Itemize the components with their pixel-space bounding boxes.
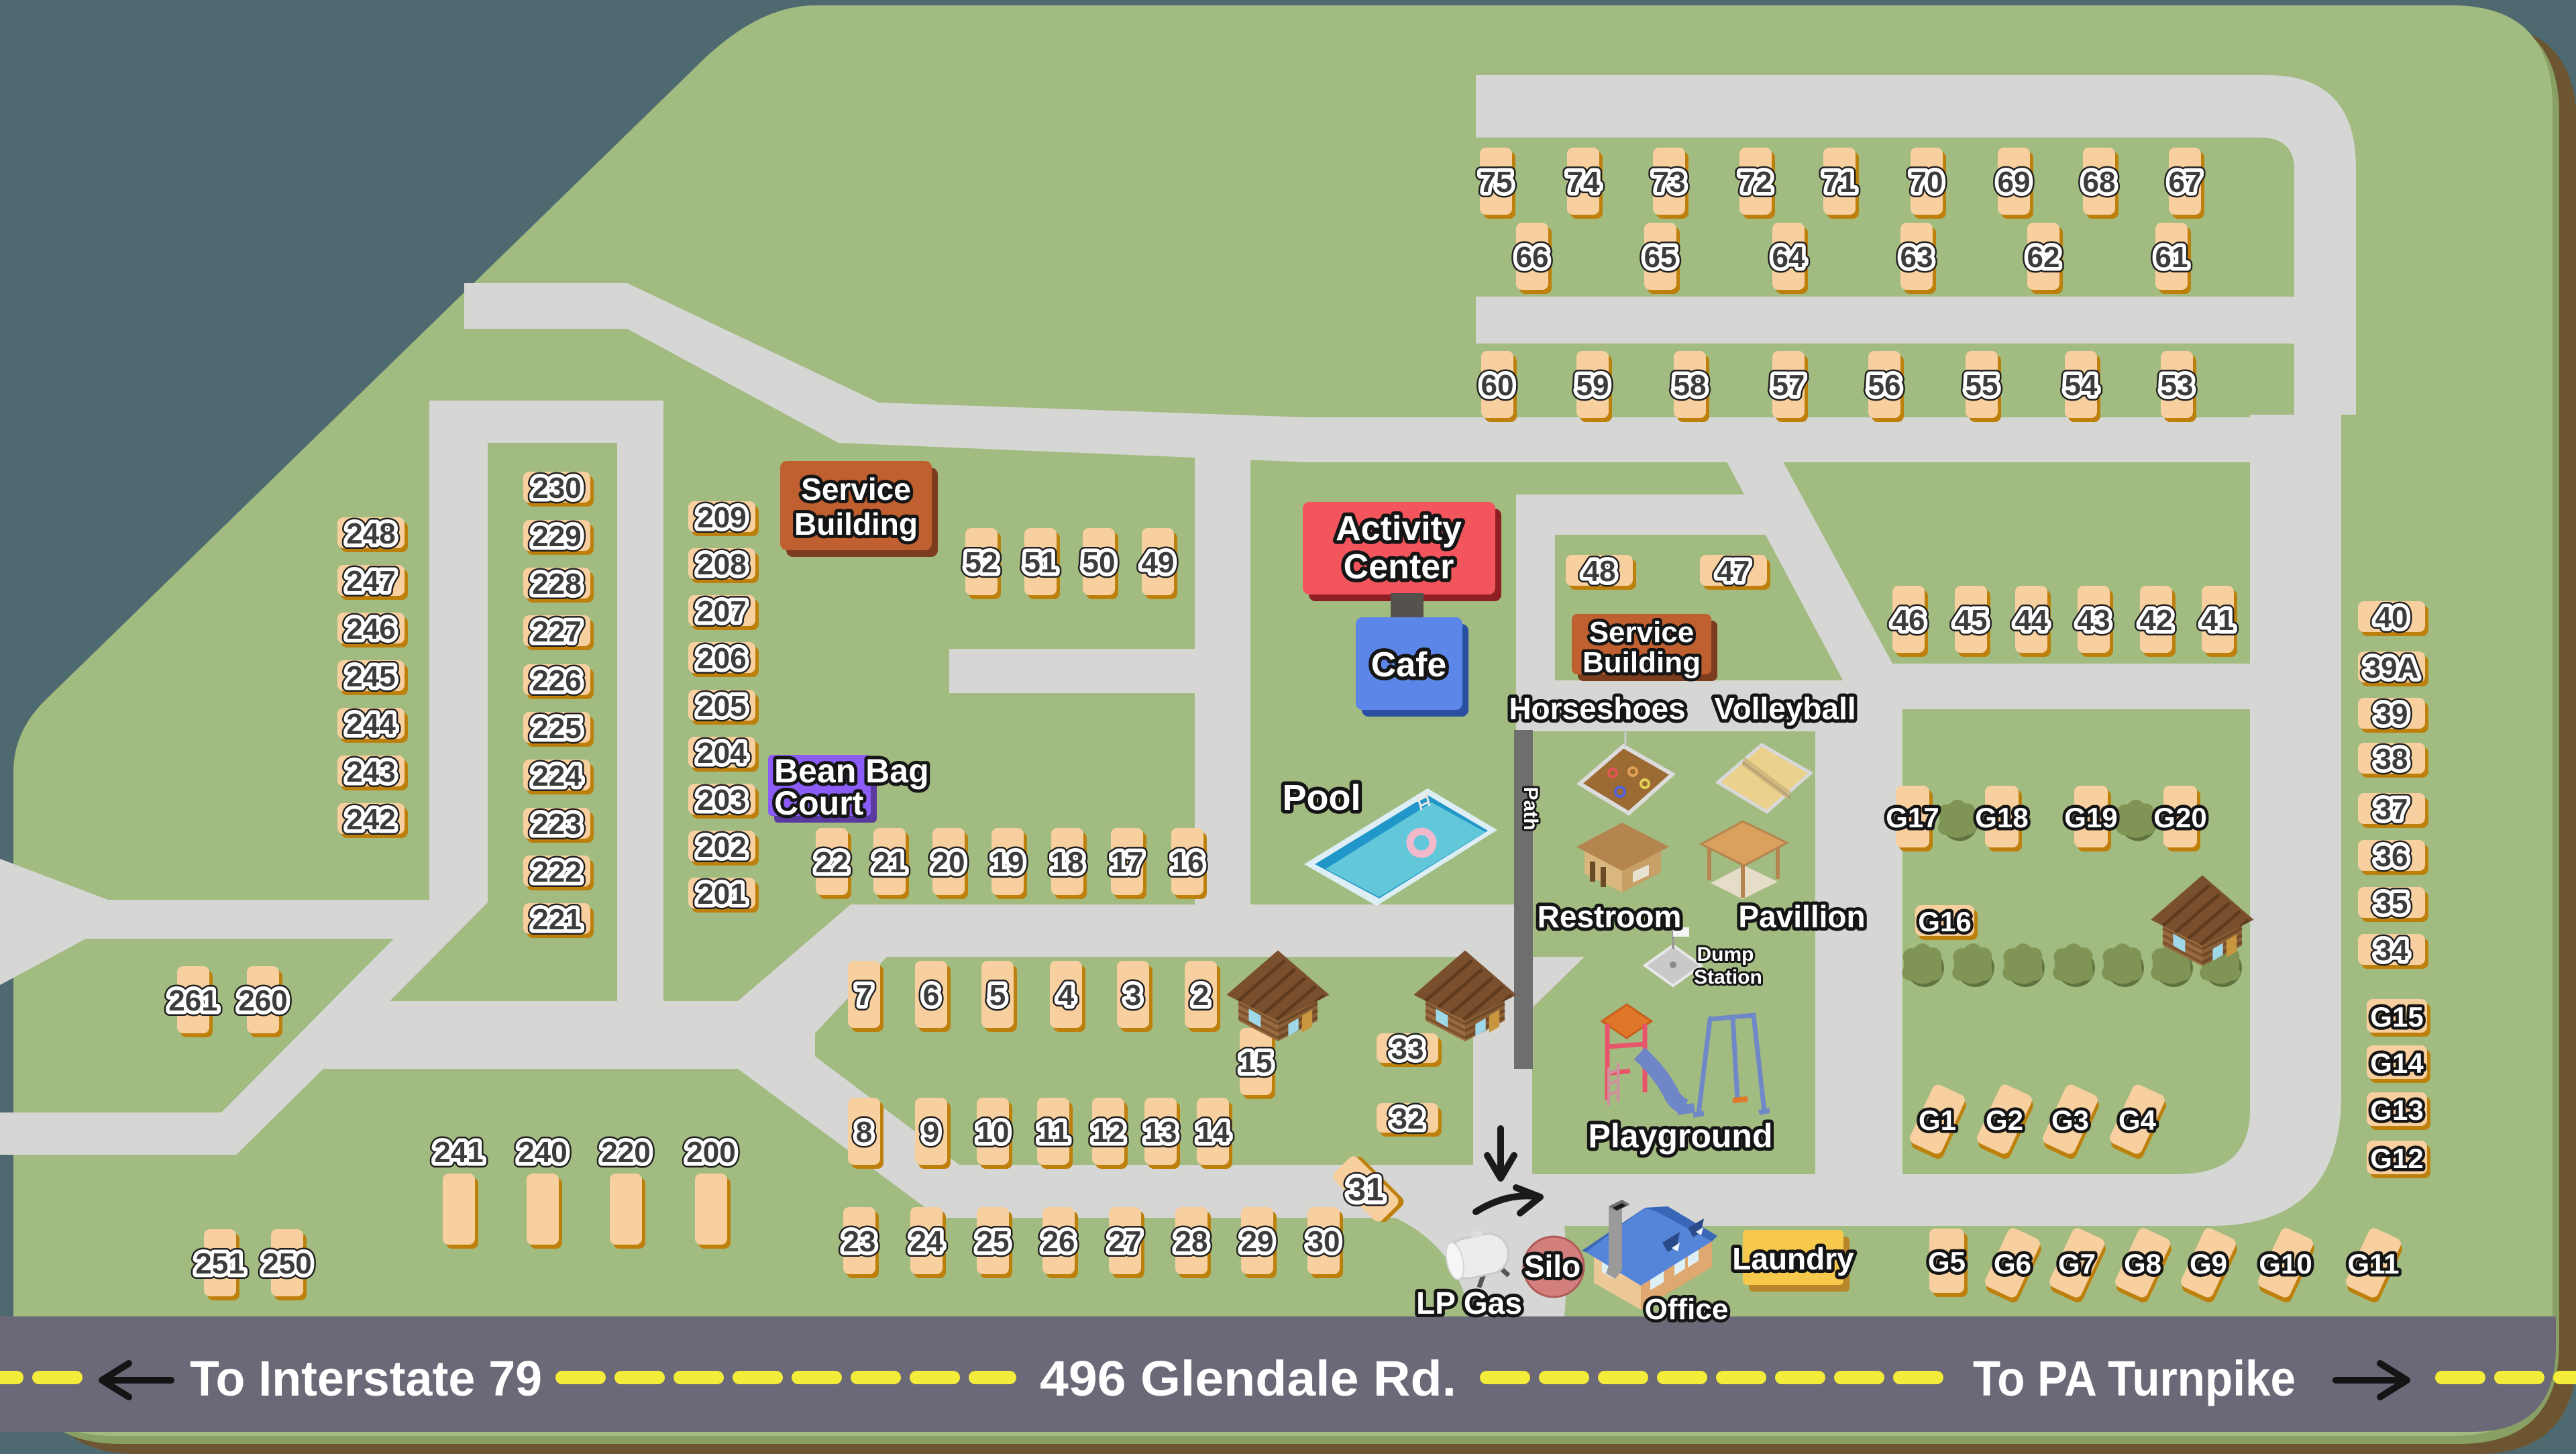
- svg-text:32: 32: [1391, 1102, 1424, 1135]
- svg-text:241: 241: [434, 1136, 483, 1169]
- svg-text:Building: Building: [1582, 646, 1701, 679]
- svg-text:20: 20: [932, 846, 965, 879]
- svg-text:51: 51: [1024, 546, 1057, 579]
- svg-text:223: 223: [532, 808, 581, 841]
- svg-text:G11: G11: [2347, 1248, 2399, 1280]
- svg-text:48: 48: [1583, 555, 1616, 588]
- svg-text:G12: G12: [2370, 1143, 2423, 1174]
- svg-text:229: 229: [532, 520, 581, 553]
- svg-text:29: 29: [1241, 1225, 1274, 1258]
- svg-text:10: 10: [977, 1116, 1010, 1149]
- svg-text:58: 58: [1674, 369, 1707, 402]
- svg-text:44: 44: [2015, 604, 2048, 637]
- svg-text:15: 15: [1240, 1046, 1273, 1079]
- svg-text:19: 19: [991, 846, 1024, 879]
- svg-text:Dump: Dump: [1697, 943, 1754, 966]
- svg-text:G4: G4: [2118, 1104, 2157, 1136]
- svg-text:67: 67: [2169, 166, 2202, 199]
- svg-text:Path: Path: [1519, 786, 1542, 830]
- svg-text:250: 250: [262, 1247, 311, 1280]
- svg-text:Volleyball: Volleyball: [1714, 691, 1856, 726]
- svg-text:61: 61: [2155, 241, 2188, 274]
- svg-text:24: 24: [910, 1225, 943, 1258]
- svg-text:260: 260: [238, 984, 287, 1017]
- svg-text:46: 46: [1892, 604, 1925, 637]
- svg-text:Pavillion: Pavillion: [1738, 899, 1865, 934]
- svg-text:4: 4: [1058, 979, 1075, 1012]
- svg-text:18: 18: [1051, 846, 1084, 879]
- svg-text:206: 206: [697, 642, 746, 675]
- svg-text:200: 200: [686, 1136, 735, 1169]
- svg-text:54: 54: [2065, 369, 2098, 402]
- svg-text:11: 11: [1038, 1116, 1069, 1149]
- svg-text:248: 248: [346, 517, 395, 550]
- svg-text:42: 42: [2140, 604, 2173, 637]
- svg-text:228: 228: [532, 568, 581, 601]
- svg-text:201: 201: [697, 878, 746, 911]
- svg-text:205: 205: [697, 690, 746, 723]
- svg-text:47: 47: [1717, 555, 1750, 588]
- svg-text:75: 75: [1480, 166, 1513, 199]
- svg-text:222: 222: [532, 855, 581, 888]
- svg-text:251: 251: [195, 1247, 244, 1280]
- svg-text:69: 69: [1998, 166, 2031, 199]
- svg-text:Center: Center: [1344, 548, 1454, 586]
- svg-text:17: 17: [1111, 846, 1144, 879]
- svg-text:71: 71: [1823, 166, 1856, 199]
- svg-text:40: 40: [2375, 601, 2408, 634]
- svg-text:224: 224: [532, 760, 582, 792]
- svg-text:240: 240: [518, 1136, 567, 1169]
- svg-text:244: 244: [346, 708, 396, 741]
- svg-text:G17: G17: [1886, 802, 1939, 833]
- svg-text:221: 221: [532, 903, 581, 936]
- svg-text:G8: G8: [2124, 1248, 2161, 1280]
- svg-text:56: 56: [1868, 369, 1901, 402]
- svg-text:Office: Office: [1645, 1293, 1729, 1326]
- svg-text:64: 64: [1772, 241, 1805, 274]
- svg-text:G10: G10: [2259, 1248, 2312, 1280]
- svg-text:Station: Station: [1694, 966, 1762, 988]
- svg-text:G9: G9: [2190, 1248, 2227, 1280]
- svg-text:Horseshoes: Horseshoes: [1509, 691, 1685, 726]
- svg-text:G14: G14: [2370, 1047, 2424, 1079]
- svg-text:G5: G5: [1928, 1246, 1966, 1278]
- svg-text:247: 247: [346, 565, 395, 598]
- svg-text:G1: G1: [1919, 1104, 1956, 1136]
- svg-text:43: 43: [2078, 604, 2110, 637]
- svg-text:2: 2: [1193, 979, 1209, 1012]
- svg-text:26: 26: [1042, 1225, 1075, 1258]
- svg-text:16: 16: [1171, 846, 1204, 879]
- svg-text:Service: Service: [801, 472, 911, 507]
- svg-text:57: 57: [1772, 369, 1805, 402]
- svg-text:225: 225: [532, 712, 581, 745]
- svg-text:Pool: Pool: [1283, 778, 1361, 818]
- svg-text:Laundry: Laundry: [1732, 1241, 1854, 1276]
- svg-text:70: 70: [1911, 166, 1943, 199]
- svg-text:22: 22: [816, 846, 849, 879]
- svg-text:72: 72: [1739, 166, 1772, 199]
- svg-text:245: 245: [346, 660, 395, 693]
- svg-text:207: 207: [697, 595, 746, 628]
- svg-text:13: 13: [1144, 1116, 1177, 1149]
- svg-text:6: 6: [923, 979, 939, 1012]
- svg-text:41: 41: [2202, 604, 2235, 637]
- svg-text:242: 242: [346, 803, 395, 836]
- svg-text:60: 60: [1481, 369, 1514, 402]
- svg-text:203: 203: [697, 784, 746, 817]
- svg-text:74: 74: [1567, 166, 1600, 199]
- svg-text:Playground: Playground: [1588, 1117, 1772, 1155]
- svg-text:To PA Turnpike: To PA Turnpike: [1973, 1351, 2296, 1406]
- svg-text:12: 12: [1092, 1116, 1125, 1149]
- svg-text:Court: Court: [774, 784, 864, 822]
- svg-text:38: 38: [2375, 743, 2408, 776]
- svg-text:G16: G16: [1918, 906, 1971, 937]
- svg-text:62: 62: [2027, 241, 2060, 274]
- svg-text:73: 73: [1653, 166, 1686, 199]
- svg-text:220: 220: [601, 1136, 650, 1169]
- svg-text:226: 226: [532, 664, 581, 697]
- svg-text:Activity: Activity: [1336, 509, 1462, 548]
- svg-text:204: 204: [697, 737, 747, 770]
- svg-text:35: 35: [2375, 887, 2408, 920]
- svg-text:Restroom: Restroom: [1538, 899, 1682, 934]
- svg-text:45: 45: [1955, 604, 1988, 637]
- svg-text:496 Glendale Rd.: 496 Glendale Rd.: [1040, 1351, 1456, 1406]
- svg-text:34: 34: [2375, 934, 2408, 967]
- svg-text:227: 227: [532, 615, 581, 648]
- svg-text:G18: G18: [1975, 802, 2028, 833]
- svg-text:8: 8: [856, 1116, 872, 1149]
- svg-text:G20: G20: [2153, 802, 2206, 833]
- svg-text:Silo: Silo: [1524, 1249, 1580, 1284]
- svg-text:G2: G2: [1986, 1104, 2023, 1136]
- svg-text:31: 31: [1348, 1172, 1383, 1208]
- svg-text:33: 33: [1391, 1033, 1424, 1066]
- svg-text:246: 246: [346, 613, 395, 645]
- svg-text:66: 66: [1516, 241, 1549, 274]
- svg-text:14: 14: [1197, 1116, 1230, 1149]
- svg-text:36: 36: [2375, 840, 2408, 873]
- svg-text:G13: G13: [2370, 1094, 2423, 1126]
- svg-text:28: 28: [1175, 1225, 1208, 1258]
- svg-text:To Interstate 79: To Interstate 79: [190, 1351, 542, 1406]
- svg-text:208: 208: [697, 548, 746, 581]
- svg-text:53: 53: [2161, 369, 2194, 402]
- svg-text:39A: 39A: [2365, 652, 2419, 684]
- svg-text:261: 261: [168, 984, 217, 1017]
- svg-text:G19: G19: [2064, 802, 2117, 833]
- svg-text:23: 23: [843, 1225, 876, 1258]
- svg-text:39: 39: [2375, 698, 2408, 731]
- svg-text:243: 243: [346, 756, 395, 788]
- svg-text:LP Gas: LP Gas: [1416, 1286, 1522, 1320]
- svg-text:3: 3: [1125, 979, 1141, 1012]
- svg-text:50: 50: [1083, 546, 1116, 579]
- svg-text:63: 63: [1900, 241, 1933, 274]
- svg-text:49: 49: [1142, 546, 1175, 579]
- svg-text:21: 21: [873, 846, 906, 879]
- svg-text:G3: G3: [2051, 1104, 2089, 1136]
- svg-text:30: 30: [1307, 1225, 1340, 1258]
- svg-text:59: 59: [1576, 369, 1609, 402]
- svg-text:55: 55: [1966, 369, 1998, 402]
- svg-text:52: 52: [965, 546, 998, 579]
- svg-text:65: 65: [1644, 241, 1677, 274]
- svg-text:5: 5: [989, 979, 1006, 1012]
- svg-text:Service: Service: [1589, 616, 1695, 649]
- svg-text:G15: G15: [2370, 1001, 2423, 1033]
- svg-text:209: 209: [697, 501, 746, 534]
- svg-text:25: 25: [977, 1225, 1010, 1258]
- svg-text:27: 27: [1109, 1225, 1142, 1258]
- svg-text:9: 9: [923, 1116, 939, 1149]
- svg-text:Building: Building: [794, 507, 918, 541]
- svg-text:230: 230: [532, 472, 581, 505]
- svg-text:37: 37: [2375, 793, 2408, 826]
- svg-text:G6: G6: [1994, 1248, 2031, 1280]
- svg-text:Cafe: Cafe: [1371, 645, 1447, 684]
- svg-text:68: 68: [2083, 166, 2116, 199]
- svg-text:7: 7: [856, 979, 872, 1012]
- svg-text:202: 202: [697, 831, 746, 864]
- svg-text:G7: G7: [2058, 1248, 2096, 1280]
